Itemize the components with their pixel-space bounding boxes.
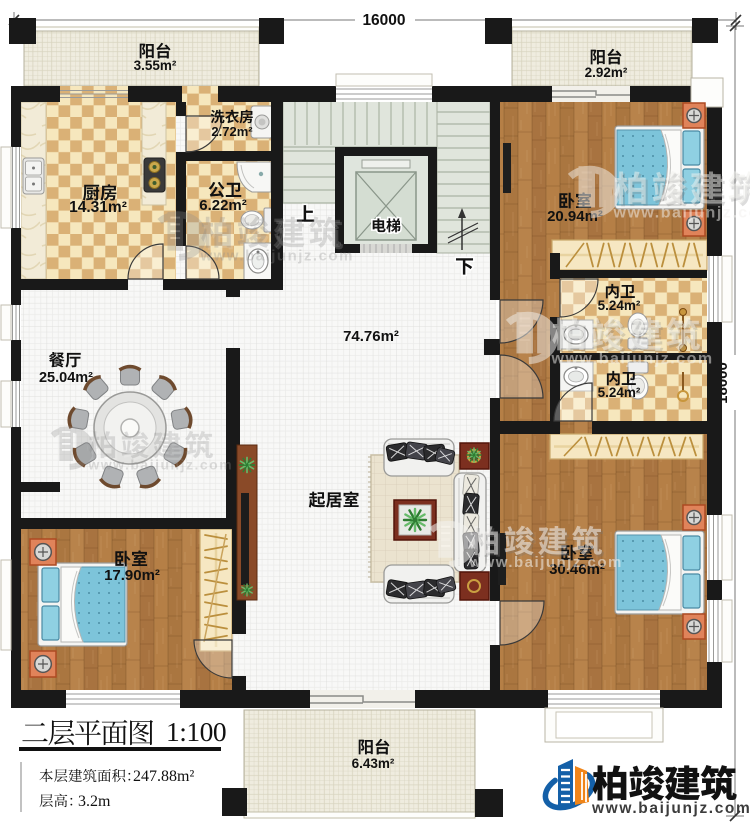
svg-text:25.04m²: 25.04m² <box>39 370 93 386</box>
svg-text:16000: 16000 <box>362 12 405 29</box>
svg-text:2.92m²: 2.92m² <box>585 65 628 80</box>
svg-text:1:100: 1:100 <box>166 716 226 747</box>
svg-text:17.90m²: 17.90m² <box>104 567 160 584</box>
svg-text:www.baijunjz.com: www.baijunjz.com <box>551 351 714 368</box>
svg-text:www.baijunjz.com: www.baijunjz.com <box>87 456 233 472</box>
svg-text:6.43m²: 6.43m² <box>352 756 395 771</box>
svg-text:2.72m²: 2.72m² <box>211 124 253 139</box>
svg-text:www.baijunjz.com: www.baijunjz.com <box>199 247 353 264</box>
svg-text:5.24m²: 5.24m² <box>598 385 641 400</box>
svg-text:www.baijunjz.com: www.baijunjz.com <box>613 205 750 222</box>
svg-text:www.baijunjz.com: www.baijunjz.com <box>591 800 750 817</box>
svg-text:74.76m²: 74.76m² <box>343 328 399 345</box>
svg-text:5.24m²: 5.24m² <box>598 298 641 313</box>
svg-text:www.baijunjz.com: www.baijunjz.com <box>468 554 622 571</box>
svg-text:14.31m²: 14.31m² <box>69 199 127 216</box>
svg-text:3.2m: 3.2m <box>78 793 111 810</box>
svg-text:3.55m²: 3.55m² <box>134 58 177 73</box>
svg-text:6.22m²: 6.22m² <box>199 197 247 214</box>
svg-text:247.88m²: 247.88m² <box>133 768 194 785</box>
